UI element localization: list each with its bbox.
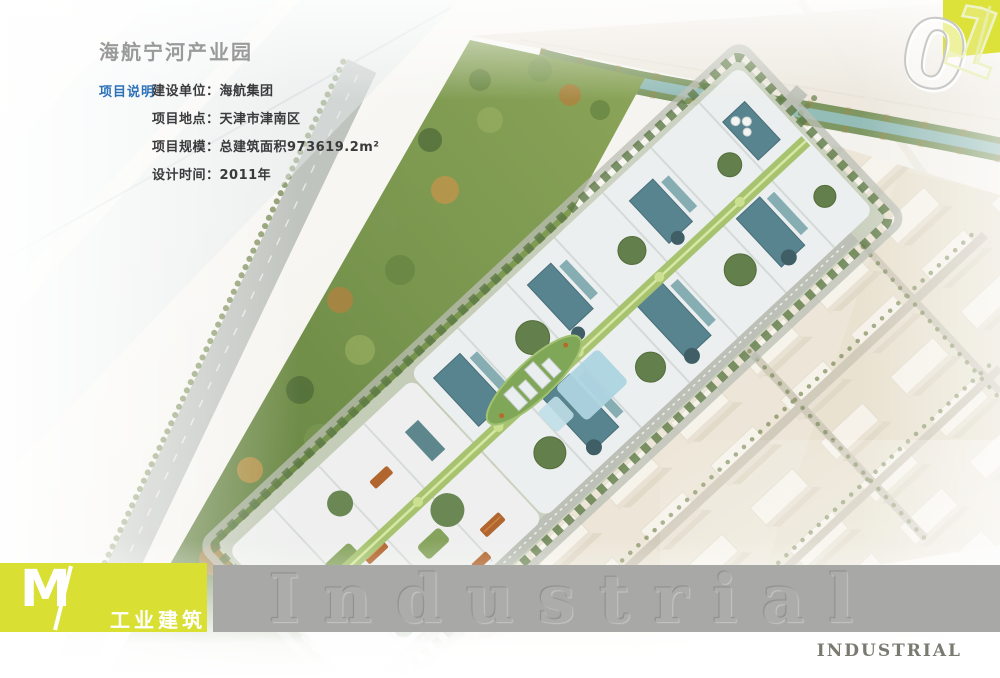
project-info: 海航宁河产业园 项目说明 建设单位：海航集团 项目地点：天津市津南区 项目规模：… [99,36,253,65]
project-section-label: 项目说明 [99,81,155,100]
project-fields: 建设单位：海航集团 项目地点：天津市津南区 项目规模：总建筑面积973619.2… [152,80,512,192]
watermark-text: Industrial [213,565,877,632]
section-badge: M 工业建筑 [0,563,207,632]
project-field-location: 项目地点：天津市津南区 [152,108,512,127]
portfolio-page: 海航宁河产业园 项目说明 建设单位：海航集团 项目地点：天津市津南区 项目规模：… [0,0,1000,678]
watermark-band: Industrial [213,565,1000,632]
page-number: 0 0 1 [840,0,1000,115]
page-title: 海航宁河产业园 [99,36,253,65]
section-label: 工业建筑 [110,604,206,633]
project-field-year: 设计时间：2011年 [152,164,512,183]
project-field-owner: 建设单位：海航集团 [152,80,512,99]
industrial-caption: INDUSTRIAL [817,641,962,661]
project-field-scale: 项目规模：总建筑面积973619.2m² [152,136,512,155]
